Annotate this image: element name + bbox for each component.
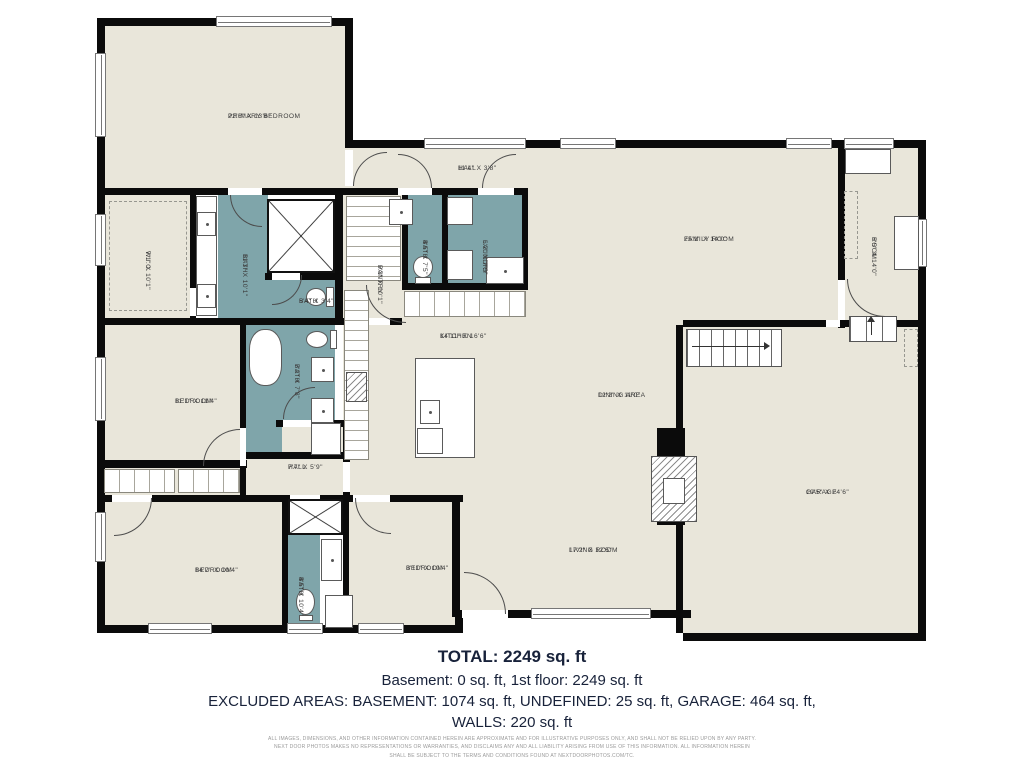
- total-area: TOTAL: 2249 sq. ft: [0, 647, 1024, 667]
- room-dimensions: 17'2" X 12'5": [569, 546, 612, 556]
- bedroom-closet: [325, 595, 353, 628]
- sink: [311, 357, 334, 382]
- disclaimer: ALL IMAGES, DIMENSIONS, AND OTHER INFORM…: [0, 735, 1024, 760]
- wall: [452, 495, 460, 617]
- toilet-bowl: [306, 331, 328, 348]
- room-closet: [845, 149, 891, 174]
- room-dimensions: 14'11" X 16'6": [440, 332, 487, 342]
- summary-line-walls: WALLS: 220 sq. ft: [0, 712, 1024, 733]
- room-dimensions: 8'11" X 10'4": [406, 564, 449, 574]
- hall-closet: [178, 469, 240, 493]
- room-dimensions: 11'3" X 10'1": [239, 254, 249, 297]
- window: [287, 623, 323, 634]
- wall: [683, 633, 926, 641]
- disclaimer-line: SHALL BE SUBJECT TO THE TERMS AND CONDIT…: [0, 752, 1024, 760]
- wall: [97, 188, 353, 195]
- wall: [240, 460, 246, 502]
- island-cabinet: [417, 428, 443, 454]
- room-dimensions: 14'7" X 10'4": [195, 566, 238, 576]
- toilet-tank: [330, 330, 337, 349]
- summary-line-excluded: EXCLUDED AREAS: BASEMENT: 1074 sq. ft, U…: [0, 691, 1024, 712]
- area-summary: TOTAL: 2249 sq. ft Basement: 0 sq. ft, 1…: [0, 647, 1024, 733]
- sink: [321, 539, 342, 581]
- sink: [197, 212, 216, 236]
- shower-bottom: [288, 499, 343, 535]
- hall-closet: [104, 469, 175, 493]
- room-dimensions: 5'4" X 3'4": [299, 297, 334, 307]
- dryer: [447, 250, 473, 280]
- window: [358, 623, 404, 634]
- disclaimer-line: ALL IMAGES, DIMENSIONS, AND OTHER INFORM…: [0, 735, 1024, 743]
- laundry-sink: [486, 257, 524, 284]
- room-dimensions: 4'5" X 7'5": [419, 240, 429, 275]
- room-dimensions: 5'3" X 10'1": [374, 265, 384, 304]
- kitchen-counter: [404, 291, 526, 317]
- wall: [345, 18, 353, 148]
- door-opening: [838, 280, 845, 320]
- room-dimensions: 19'5" X 24'6": [806, 488, 849, 498]
- window: [560, 138, 616, 149]
- room-shelving: [844, 191, 858, 259]
- summary-line-basement: Basement: 0 sq. ft, 1st floor: 2249 sq. …: [0, 670, 1024, 691]
- stairs-direction-line: [692, 346, 766, 347]
- floorplan-canvas: PRIMARY BEDROOM22'6" X 13'6"HALL11'4" X …: [0, 0, 1024, 645]
- island-sink: [420, 400, 440, 424]
- door-opening: [398, 188, 432, 195]
- room-dimensions: 7'1" X 10'1": [142, 251, 152, 290]
- floor-area: [683, 327, 918, 633]
- door-opening: [283, 420, 311, 427]
- wall: [918, 140, 926, 641]
- room-dimensions: 7'7" X 5'9": [288, 463, 323, 473]
- stairs-direction-arrow-icon: [764, 342, 770, 350]
- room-dimensions: 7'2" X 7'8": [291, 364, 301, 399]
- room-dimensions: 11'4" X 3'8": [458, 164, 497, 174]
- window: [216, 16, 332, 27]
- window: [786, 138, 832, 149]
- room-dimensions: 6'5" X 14'0": [868, 237, 878, 276]
- door-opening: [826, 320, 840, 327]
- wall: [676, 523, 683, 633]
- hall-closet: [311, 423, 341, 455]
- window: [531, 608, 651, 619]
- shower-primary: [267, 199, 335, 273]
- door-opening: [228, 188, 262, 195]
- window: [95, 357, 106, 421]
- toilet-tank: [415, 277, 431, 284]
- wall: [683, 320, 843, 327]
- floor-area: [101, 22, 349, 192]
- wall: [676, 325, 683, 430]
- wall: [335, 188, 343, 325]
- sink: [197, 284, 216, 308]
- wall: [97, 318, 345, 325]
- washer: [447, 197, 473, 225]
- room-closet: [894, 216, 919, 270]
- window: [95, 53, 106, 137]
- door-opening: [343, 462, 350, 492]
- steps-direction-arrow-icon: [867, 316, 875, 322]
- disclaimer-line: NEXT DOOR PHOTOS MAKES NO REPRESENTATION…: [0, 743, 1024, 751]
- wall: [402, 283, 528, 290]
- sink: [389, 199, 413, 225]
- door-opening: [345, 150, 353, 186]
- window: [148, 623, 212, 634]
- door-opening: [240, 428, 246, 466]
- room-dimensions: 12'2" X 11'0": [598, 391, 641, 401]
- window: [95, 214, 106, 266]
- window: [844, 138, 894, 149]
- steps-direction-line: [871, 321, 872, 335]
- bathtub: [249, 329, 282, 386]
- stove: [346, 372, 367, 402]
- fireplace-core: [663, 478, 685, 504]
- window: [95, 512, 106, 562]
- room-dimensions: 6'2" X 7'5": [479, 240, 489, 275]
- room-dimensions: 4'5" X 10'4": [295, 577, 305, 616]
- garage-shelving: [904, 329, 918, 367]
- window: [424, 138, 526, 149]
- floorplan-page: PRIMARY BEDROOM22'6" X 13'6"HALL11'4" X …: [0, 0, 1024, 768]
- door-opening: [478, 188, 514, 195]
- room-dimensions: 22'6" X 13'6": [228, 112, 271, 122]
- room-dimensions: 11'1" X 11'4": [175, 397, 217, 407]
- room-dimensions: 25'1" X 14'0": [684, 235, 727, 245]
- wall: [343, 498, 349, 598]
